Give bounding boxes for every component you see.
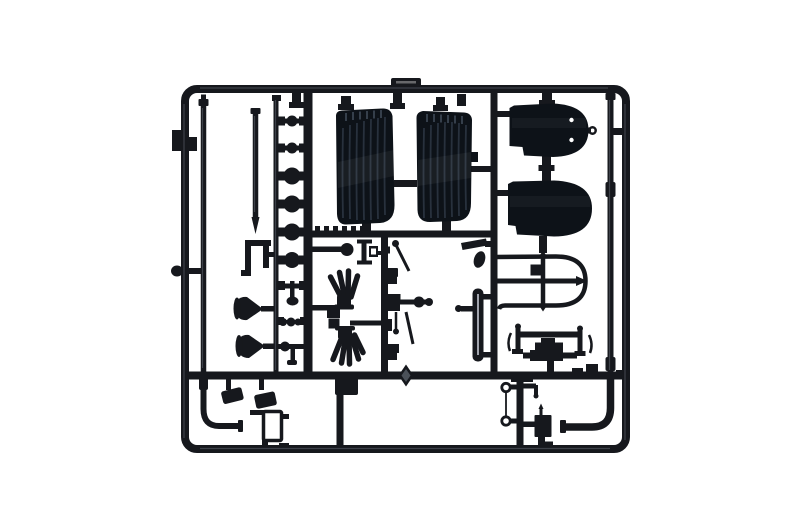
pedal-right [254, 377, 277, 409]
lever-diagonal-upper [396, 245, 409, 271]
seat-divider-connector [471, 166, 494, 172]
ball-on-stub [306, 243, 354, 256]
brake-line-eyelet-top [502, 383, 510, 391]
windscreen-frame [492, 255, 586, 309]
seat-back-right-stub [470, 152, 478, 162]
rail-block [572, 368, 583, 376]
knob-column [277, 116, 307, 366]
small-frame-part [264, 412, 282, 441]
knob-row [277, 196, 307, 213]
manifold-lower-base [335, 321, 384, 340]
manifold-lower-pipes [333, 335, 363, 364]
knob-row [277, 252, 307, 268]
t-pin-part [277, 342, 306, 366]
angled-bracket-part [461, 239, 494, 270]
product-photo [0, 0, 800, 530]
knob-row [277, 143, 307, 154]
knob-row [277, 224, 307, 241]
hook-clip [522, 384, 539, 399]
bent-pipe-right [564, 375, 611, 427]
junction-block [335, 376, 358, 395]
lever-diagonal-lower [406, 312, 413, 344]
knob-rail-cap [272, 95, 281, 101]
clamp-bracket [241, 240, 277, 276]
air-horn-large [236, 335, 279, 358]
knob-row [277, 116, 307, 127]
sprue-photo-svg [0, 0, 800, 530]
seat-pan-lower [508, 181, 592, 237]
steering-linkage [382, 294, 433, 360]
seat-pan-upper [510, 104, 589, 158]
cross-pin-part [277, 281, 307, 306]
pedal-left [221, 377, 245, 404]
manifold-upper-base [308, 295, 354, 329]
axle-hook-right [589, 335, 592, 353]
axle-assembly [512, 324, 598, 377]
leaf-spring-strip [455, 289, 494, 362]
fuel-pump-box [523, 404, 553, 449]
air-horn-small [234, 297, 279, 320]
bead-chain-part [277, 317, 307, 327]
knob-row [277, 168, 307, 185]
brake-line-eyelet-bottom [502, 417, 510, 425]
manifold-upper-pipes [331, 271, 358, 297]
seat-connector-bar [394, 180, 417, 187]
axle-hook-left [508, 333, 511, 351]
seat-bottom-stub [442, 221, 451, 235]
